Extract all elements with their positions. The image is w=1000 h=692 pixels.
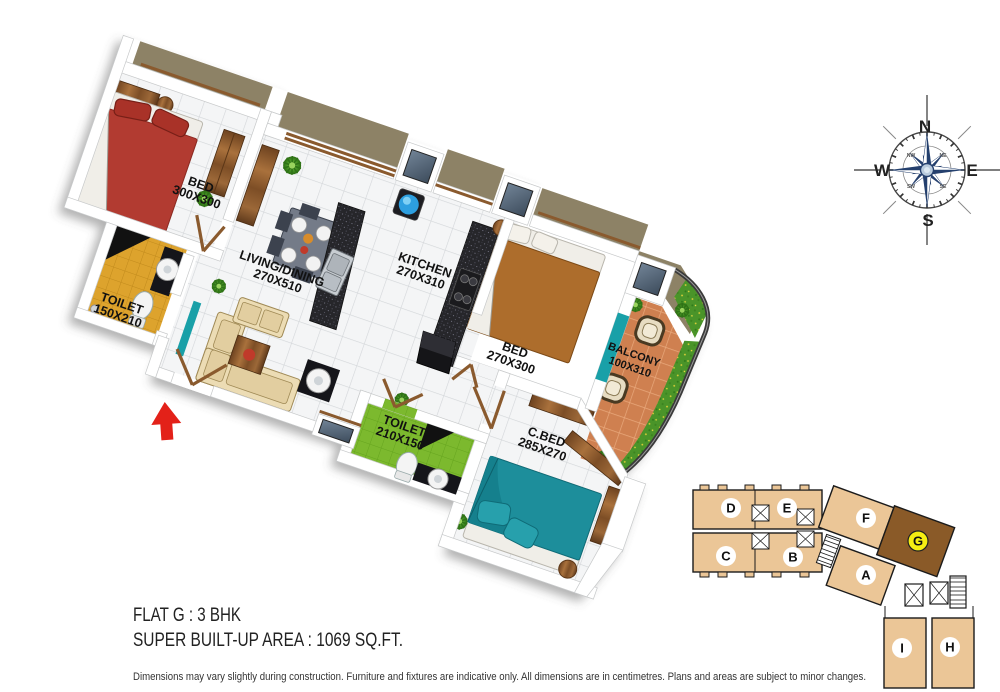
svg-text:E: E	[966, 161, 977, 180]
svg-text:W: W	[874, 161, 891, 180]
svg-text:SE: SE	[940, 184, 947, 190]
svg-text:H: H	[945, 640, 954, 655]
svg-text:SW: SW	[907, 184, 915, 190]
svg-text:D: D	[726, 501, 735, 516]
svg-text:C: C	[721, 549, 731, 564]
svg-text:A: A	[861, 568, 871, 583]
svg-text:G: G	[913, 534, 923, 549]
svg-text:N: N	[919, 117, 931, 136]
svg-text:NW: NW	[907, 153, 916, 159]
svg-text:SUPER BUILT-UP AREA : 1069 SQ.: SUPER BUILT-UP AREA : 1069 SQ.FT.	[133, 630, 403, 651]
svg-text:F: F	[862, 511, 870, 526]
svg-text:B: B	[788, 550, 797, 565]
svg-text:E: E	[783, 501, 792, 516]
svg-text:S: S	[922, 211, 933, 230]
svg-text:Dimensions may vary slightly d: Dimensions may vary slightly during cons…	[133, 671, 866, 683]
svg-text:I: I	[900, 641, 904, 656]
svg-text:NE: NE	[940, 153, 948, 159]
svg-text:FLAT G : 3 BHK: FLAT G : 3 BHK	[133, 605, 241, 626]
